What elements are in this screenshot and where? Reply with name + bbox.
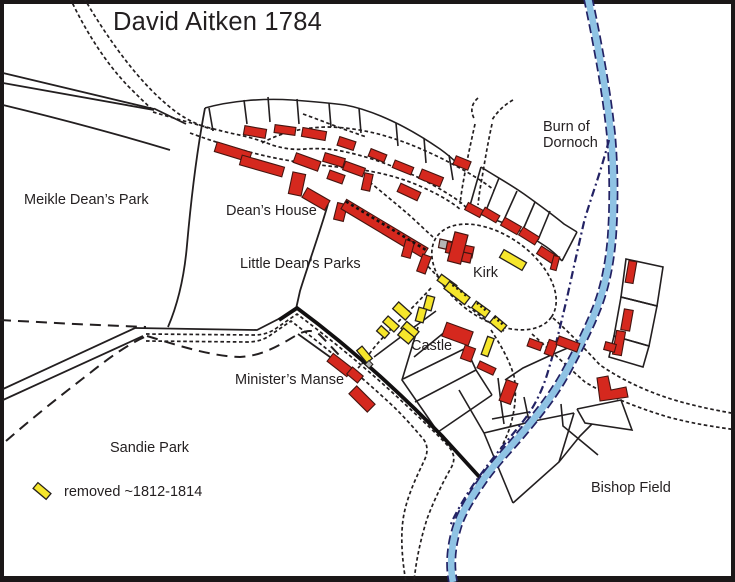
svg-text:Kirk: Kirk <box>473 265 499 281</box>
svg-text:removed ~1812-1814: removed ~1812-1814 <box>64 484 202 500</box>
svg-text:Bishop Field: Bishop Field <box>591 480 671 496</box>
svg-text:Sandie Park: Sandie Park <box>110 440 190 456</box>
svg-text:Little Dean’s Parks: Little Dean’s Parks <box>240 256 361 272</box>
svg-text:Dean’s House: Dean’s House <box>226 203 317 219</box>
svg-text:Burn of: Burn of <box>543 119 591 135</box>
svg-text:Minister’s Manse: Minister’s Manse <box>235 372 344 388</box>
svg-text:Meikle Dean’s Park: Meikle Dean’s Park <box>24 192 149 208</box>
svg-text:Castle: Castle <box>411 338 452 354</box>
svg-text:Dornoch: Dornoch <box>543 135 598 151</box>
svg-text:David Aitken 1784: David Aitken 1784 <box>113 8 322 36</box>
